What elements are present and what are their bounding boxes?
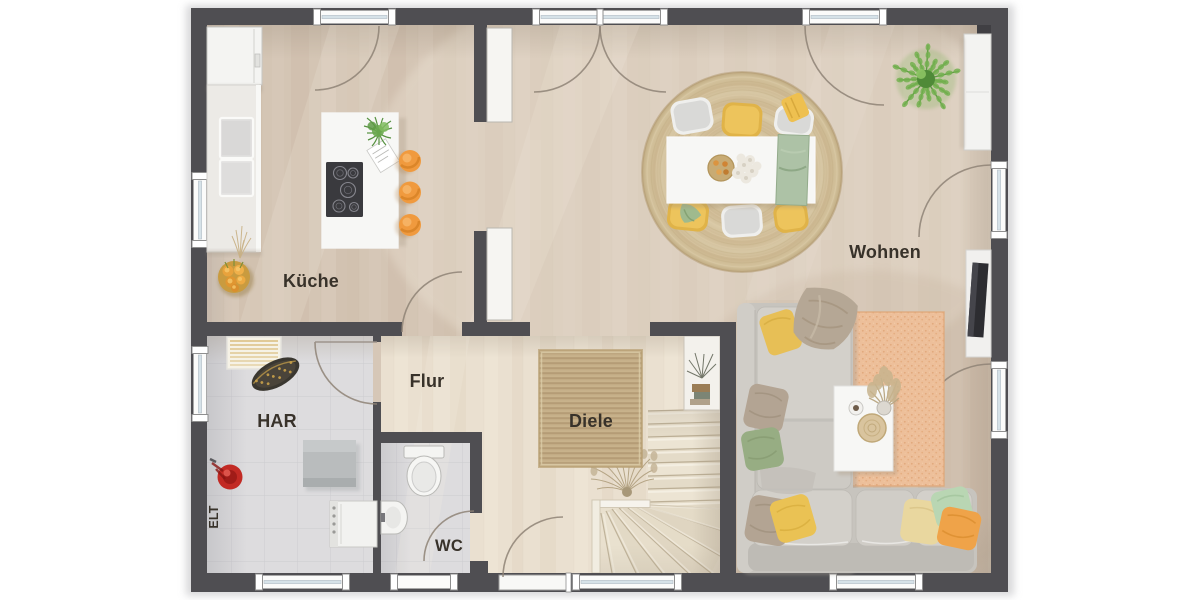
svg-text:Küche: Küche [283, 271, 339, 291]
svg-text:WC: WC [435, 537, 463, 555]
svg-text:HAR: HAR [257, 411, 297, 431]
svg-text:Flur: Flur [410, 371, 445, 391]
svg-text:Diele: Diele [569, 411, 613, 431]
svg-text:Wohnen: Wohnen [849, 242, 921, 262]
svg-text:ELT: ELT [207, 505, 221, 528]
